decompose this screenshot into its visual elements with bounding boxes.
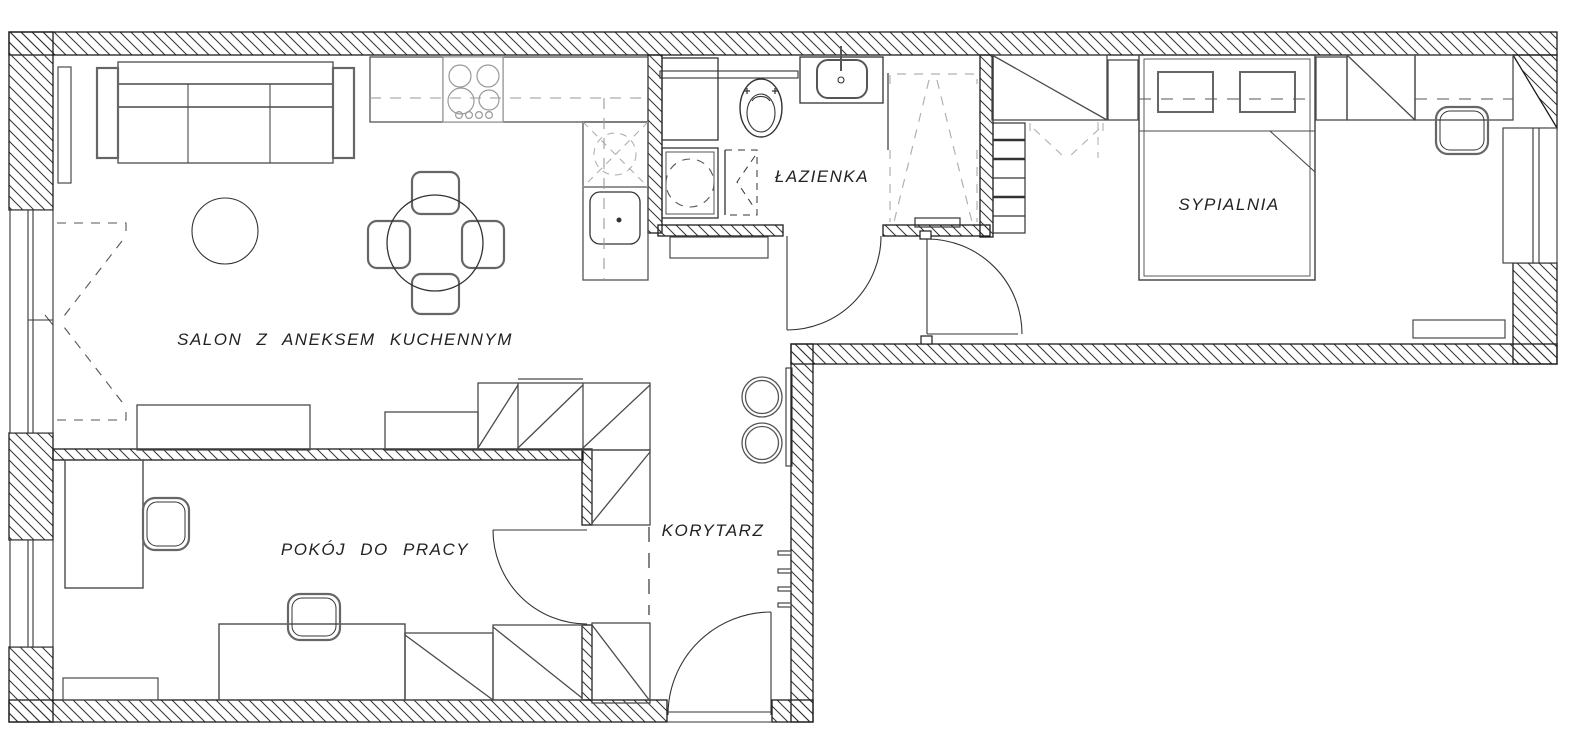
folding-door xyxy=(725,150,757,215)
lazienka-label: ŁAZIENKA xyxy=(775,167,869,186)
sink-faucet-icon xyxy=(617,218,622,223)
bedroom-chair xyxy=(1436,107,1488,154)
wall-left-lower xyxy=(9,647,53,722)
entrance-door xyxy=(668,612,771,715)
kitchen-counter xyxy=(370,57,648,280)
wall-left-upper xyxy=(9,32,53,210)
bench xyxy=(385,412,478,450)
sypialnia-label: SYPIALNIA xyxy=(1178,195,1279,214)
floor-plan-page: SALON Z ANEKSEM KUCHENNYM xyxy=(0,0,1572,750)
workroom-wardrobe xyxy=(405,625,582,700)
nightstand-left xyxy=(1108,60,1138,120)
salon-wardrobe xyxy=(478,379,650,450)
entrance-threshold xyxy=(667,712,772,722)
wall-top xyxy=(9,32,1557,55)
corner-cabinet xyxy=(583,122,648,187)
sofa xyxy=(97,62,354,163)
pokoj-label: POKÓJ DO PRACY xyxy=(281,540,469,559)
washing-machine-icon xyxy=(662,148,718,218)
dining-set xyxy=(368,172,504,314)
room-pokoj: POKÓJ DO PRACY xyxy=(63,460,582,700)
round-rug xyxy=(192,198,258,264)
openings xyxy=(10,128,1557,722)
hall-sideboard xyxy=(670,237,768,258)
room-salon: SALON Z ANEKSEM KUCHENNYM xyxy=(58,57,792,466)
shower-icon xyxy=(890,74,977,222)
wall-bath-bottom-west xyxy=(658,225,783,236)
kitchen-sink xyxy=(590,192,640,244)
wall-bottom-left xyxy=(9,700,667,722)
wall-shower-side xyxy=(980,55,993,237)
shelving-unit xyxy=(993,123,1025,233)
nightstand-right xyxy=(1316,57,1347,120)
bedroom-door xyxy=(927,239,1022,334)
pillow-left xyxy=(1158,72,1213,112)
door-notch-bottom xyxy=(921,336,932,344)
dining-table xyxy=(387,195,483,291)
wall-column-top xyxy=(582,449,592,525)
toilet-shelf xyxy=(660,71,798,78)
bedroom-closet xyxy=(992,55,1107,120)
desk-bottom xyxy=(219,624,405,700)
balcony-door xyxy=(10,210,126,433)
doors xyxy=(493,236,1022,715)
floor-plan-drawing: SALON Z ANEKSEM KUCHENNYM xyxy=(0,0,1572,750)
cooktop-icon xyxy=(443,57,503,122)
room-sypialnia: SYPIALNIA xyxy=(992,55,1513,338)
window-left xyxy=(10,540,53,647)
wall-bottom-entry-pier xyxy=(772,700,813,722)
tv-bench xyxy=(137,405,310,450)
walls xyxy=(9,32,1557,722)
korytarz-label: KORYTARZ xyxy=(662,521,765,540)
bedroom-radiator xyxy=(1413,320,1505,338)
room-lazienka: ŁAZIENKA xyxy=(660,46,977,227)
balcony-door-swing xyxy=(57,223,126,420)
side-shelf xyxy=(58,67,71,183)
workroom-radiator xyxy=(63,678,158,700)
wall-kitchen-bath xyxy=(648,55,662,233)
wall-bedroom-bottom xyxy=(791,344,1557,364)
tall-cabinet xyxy=(662,58,718,140)
room-korytarz: KORYTARZ xyxy=(592,450,791,703)
door-notches xyxy=(920,231,932,344)
wall-top-right-chamfer xyxy=(1513,55,1557,128)
chair-bottom xyxy=(288,594,340,640)
wall-corridor-right xyxy=(791,344,813,722)
window-right xyxy=(1503,128,1557,263)
salon-label: SALON Z ANEKSEM KUCHENNYM xyxy=(177,330,513,349)
bathroom-door xyxy=(787,236,881,330)
corridor-wardrobe xyxy=(592,450,650,703)
workroom-door xyxy=(493,530,587,624)
bedroom-wardrobe xyxy=(1347,55,1415,120)
wall-left-middle xyxy=(9,433,53,540)
door-notch-top xyxy=(920,231,931,239)
coat-hooks-icon xyxy=(778,551,791,607)
double-bed xyxy=(1139,55,1315,280)
desk-left xyxy=(65,460,143,588)
wall-column-bottom xyxy=(582,625,592,700)
toilet-icon xyxy=(740,79,782,137)
stools xyxy=(742,377,782,463)
chair-left xyxy=(143,498,189,550)
pillow-right xyxy=(1240,72,1295,112)
bedroom-desk xyxy=(1415,55,1513,120)
closet-door-swing xyxy=(1030,122,1103,158)
